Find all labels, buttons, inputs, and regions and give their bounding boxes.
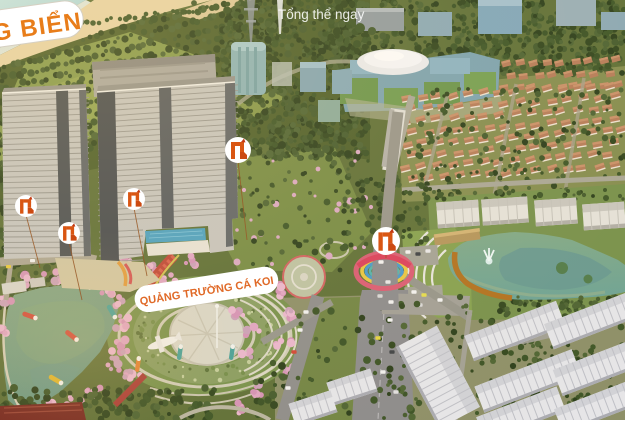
- svg-text:Tổng thể ngay: Tổng thể ngay: [278, 7, 365, 22]
